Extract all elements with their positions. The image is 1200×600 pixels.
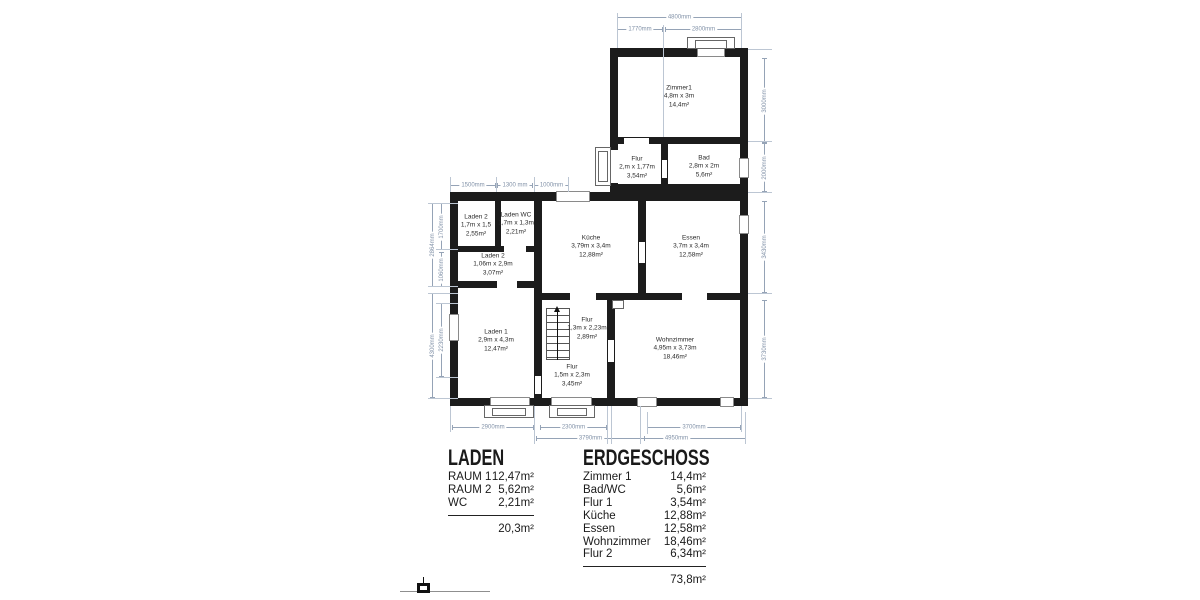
extension-line [748, 398, 772, 399]
erdgeschoss-table-title: ERDGESCHOSS [583, 448, 674, 468]
extension-line [450, 406, 451, 432]
room-label-wohnzimmer: Wohnzimmer4,95m x 3,73m18,46m² [654, 336, 697, 361]
row-label: Wohnzimmer [583, 536, 651, 549]
erdgeschoss-total: 73,8m² [583, 566, 706, 586]
room-label-flur-og: Flur2,m x 1,77m3,54m² [619, 155, 655, 180]
extension-line [428, 398, 458, 399]
table-row: RAUM 2 5,62m² [448, 484, 534, 497]
row-value: 5,6m² [677, 484, 706, 497]
door-opening [497, 281, 517, 288]
table-row: Zimmer 1 14,4m² [583, 471, 706, 484]
table-row: Küche 12,88m² [583, 510, 706, 523]
extension-line [640, 406, 641, 444]
row-label: Küche [583, 510, 616, 523]
extension-line [741, 13, 742, 48]
row-label: RAUM 1 [448, 471, 491, 484]
window [720, 397, 734, 407]
entrance-door-frame [598, 151, 608, 182]
row-label: Flur 2 [583, 548, 612, 561]
row-label: Flur 1 [583, 497, 612, 510]
window [556, 191, 590, 202]
wall [610, 184, 748, 192]
cutoff-chimney-tick [423, 577, 424, 583]
dimension: 2300mm [540, 427, 607, 428]
table-row: WC 2,21m² [448, 497, 534, 510]
row-value: 12,88m² [664, 510, 706, 523]
room-label-laden-wc: Laden WC1,7m x 1,3m2,21m² [498, 211, 534, 236]
extension-line [428, 286, 458, 287]
door-opening [682, 293, 707, 300]
extension-line [647, 412, 648, 434]
cutoff-chimney-symbol-inner [420, 586, 427, 590]
dimension: 2000mm [764, 143, 765, 192]
extension-line [450, 177, 451, 192]
wall [450, 192, 748, 201]
row-label: Essen [583, 523, 615, 536]
dimension: 2800mm [665, 29, 742, 30]
window [739, 215, 749, 234]
extension-line [568, 177, 569, 192]
dimension: 4950mm [607, 438, 746, 439]
door-opening [570, 293, 596, 300]
extension-line [496, 177, 497, 192]
row-value: 18,46m² [664, 536, 706, 549]
row-value: 3,54m² [670, 497, 706, 510]
dimension: 2900mm [452, 427, 534, 428]
entry-step [492, 408, 526, 416]
wall [534, 293, 748, 300]
extension-line [748, 49, 772, 50]
dimension: 3700mm [647, 427, 741, 428]
table-row: Flur 2 6,34m² [583, 548, 706, 561]
wall [610, 48, 748, 57]
dimension: 1000mm [534, 185, 569, 186]
extension-line [663, 25, 664, 137]
door-opening [608, 340, 614, 362]
room-label-kueche: Küche3,79m x 3,4m12,88m² [571, 234, 610, 259]
entry-step [557, 408, 587, 416]
door-opening [639, 242, 645, 263]
extension-line [745, 412, 746, 444]
extension-line [611, 406, 612, 444]
door-opening [504, 246, 526, 252]
extension-line [436, 249, 458, 250]
dimension: 1300 mm [497, 185, 533, 186]
extension-line [534, 406, 535, 444]
door-opening [624, 138, 649, 144]
door-leaf-symbol [612, 300, 624, 309]
table-row: RAUM 1 12,47m² [448, 471, 534, 484]
door-opening [610, 150, 618, 183]
room-label-laden2b: Laden 21,06m x 2,9m3,07m² [473, 252, 512, 277]
wall [450, 281, 534, 288]
laden-total: 20,3m² [448, 515, 534, 535]
laden-table: LADEN RAUM 1 12,47m² RAUM 2 5,62m² WC 2,… [448, 448, 534, 535]
room-label-flur-mid: Flur1,3m x 2,23m2,89m² [567, 316, 606, 341]
room-label-flur-bottom: Flur1,5m x 2,3m3,45m² [554, 363, 590, 388]
row-value: 6,34m² [670, 548, 706, 561]
dimension: 1060mm [441, 252, 442, 287]
extension-line [534, 177, 535, 192]
dimension: 2864mm [432, 203, 433, 287]
dimension: 3730mm [764, 300, 765, 398]
row-label: RAUM 2 [448, 484, 491, 497]
floorplan-canvas: Zimmer14,8m x 3m14,4m² Flur2,m x 1,77m3,… [0, 0, 1200, 600]
row-value: 12,47m² [492, 471, 534, 484]
row-value: 2,21m² [498, 497, 534, 510]
room-label-bad: Bad2,8m x 2m5,6m² [689, 154, 719, 179]
row-label: WC [448, 497, 467, 510]
stair-arrow-head [554, 306, 560, 312]
table-row: Flur 1 3,54m² [583, 497, 706, 510]
extension-line [748, 192, 772, 193]
extension-line [428, 203, 458, 204]
row-value: 5,62m² [498, 484, 534, 497]
row-value: 14,4m² [670, 471, 706, 484]
table-row: Bad/WC 5,6m² [583, 484, 706, 497]
extension-line [617, 13, 618, 48]
laden-table-title: LADEN [448, 448, 512, 468]
dimension: 4300mm [432, 293, 433, 398]
extension-line [741, 406, 742, 432]
row-label: Bad/WC [583, 484, 626, 497]
room-label-essen: Essen3,7m x 3,4m12,58m² [673, 234, 709, 259]
extension-line [607, 406, 608, 444]
door-opening [662, 160, 667, 178]
table-row: Wohnzimmer 18,46m² [583, 536, 706, 549]
room-label-laden2a: Laden 21,7m x 1,52,55m² [461, 213, 491, 238]
row-value: 12,58m² [664, 523, 706, 536]
window [449, 314, 459, 341]
dimension: 2230mm [441, 303, 442, 377]
wall [450, 192, 458, 406]
chimney-symbol [695, 40, 727, 49]
door-opening [535, 376, 541, 394]
dimension: 3000mm [764, 58, 765, 143]
dimension: 4800mm [617, 17, 742, 18]
dimension: 1770mm [617, 29, 663, 30]
table-row: Essen 12,58m² [583, 523, 706, 536]
extension-line [436, 377, 458, 378]
cutoff-plan-wall-line [400, 591, 490, 592]
dimension: 1700mm [441, 203, 442, 250]
room-label-zimmer1: Zimmer14,8m x 3m14,4m² [664, 84, 694, 109]
extension-line [436, 303, 458, 304]
dimension: 1500mm [450, 185, 496, 186]
extension-line [748, 141, 772, 142]
row-label: Zimmer 1 [583, 471, 632, 484]
dimension: 3430mm [764, 201, 765, 293]
extension-line [428, 293, 458, 294]
room-label-laden1: Laden 12,9m x 4,3m12,47m² [478, 328, 514, 353]
extension-line [748, 293, 772, 294]
stair-direction-arrow [557, 312, 558, 360]
erdgeschoss-table: ERDGESCHOSS Zimmer 1 14,4m² Bad/WC 5,6m²… [583, 448, 706, 586]
window [739, 158, 749, 178]
